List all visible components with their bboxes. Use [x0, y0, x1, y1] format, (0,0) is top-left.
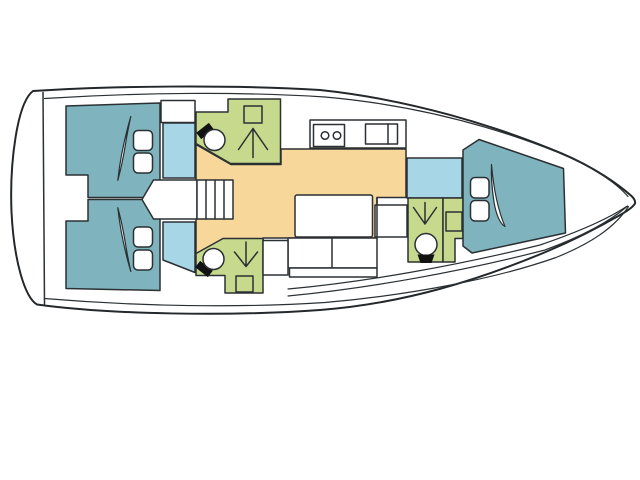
salon-table: [295, 195, 373, 237]
toilet-icon: [203, 249, 224, 270]
galley-sink-icon: [366, 124, 398, 144]
companionway-landing: [142, 180, 197, 219]
companionway-group: [142, 180, 233, 219]
pillow: [471, 201, 490, 222]
locker: [161, 101, 195, 123]
pillow: [134, 250, 153, 270]
pillow: [471, 178, 490, 199]
forward-corridor: [407, 158, 462, 198]
forward-head-group: [407, 158, 463, 263]
boat-deck-plan: [0, 0, 640, 480]
toilet-icon: [415, 234, 437, 256]
galley-group: [310, 120, 406, 148]
toilet-icon: [204, 130, 225, 151]
burner-icon: [333, 132, 341, 140]
pillow: [134, 227, 153, 247]
nav-seat: [375, 205, 407, 237]
burner-icon: [321, 132, 329, 140]
pillow: [134, 153, 153, 173]
boat-deck-plan-canvas: [0, 0, 640, 480]
corridor-upper: [163, 123, 195, 178]
cabinet: [263, 241, 288, 276]
pillow: [134, 131, 153, 151]
settee-front-edge: [290, 268, 378, 277]
